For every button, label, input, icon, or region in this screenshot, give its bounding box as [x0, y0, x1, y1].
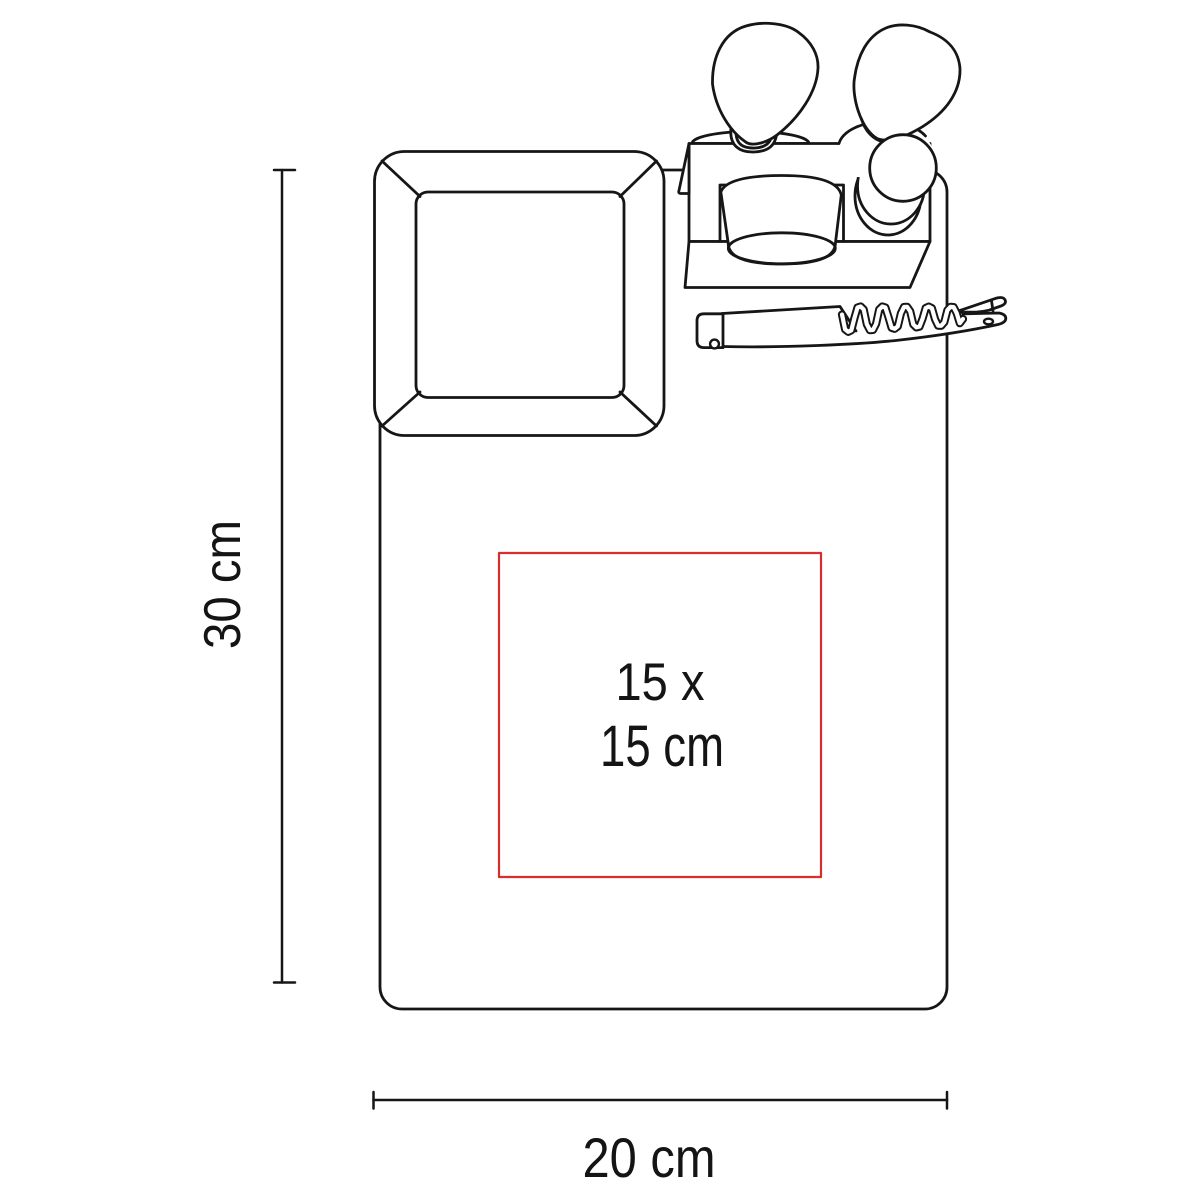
svg-text:20 cm: 20 cm [583, 1126, 716, 1189]
svg-text:30 cm: 30 cm [193, 520, 251, 649]
svg-text:15 cm: 15 cm [600, 714, 724, 779]
svg-text:15 x: 15 x [616, 653, 705, 712]
